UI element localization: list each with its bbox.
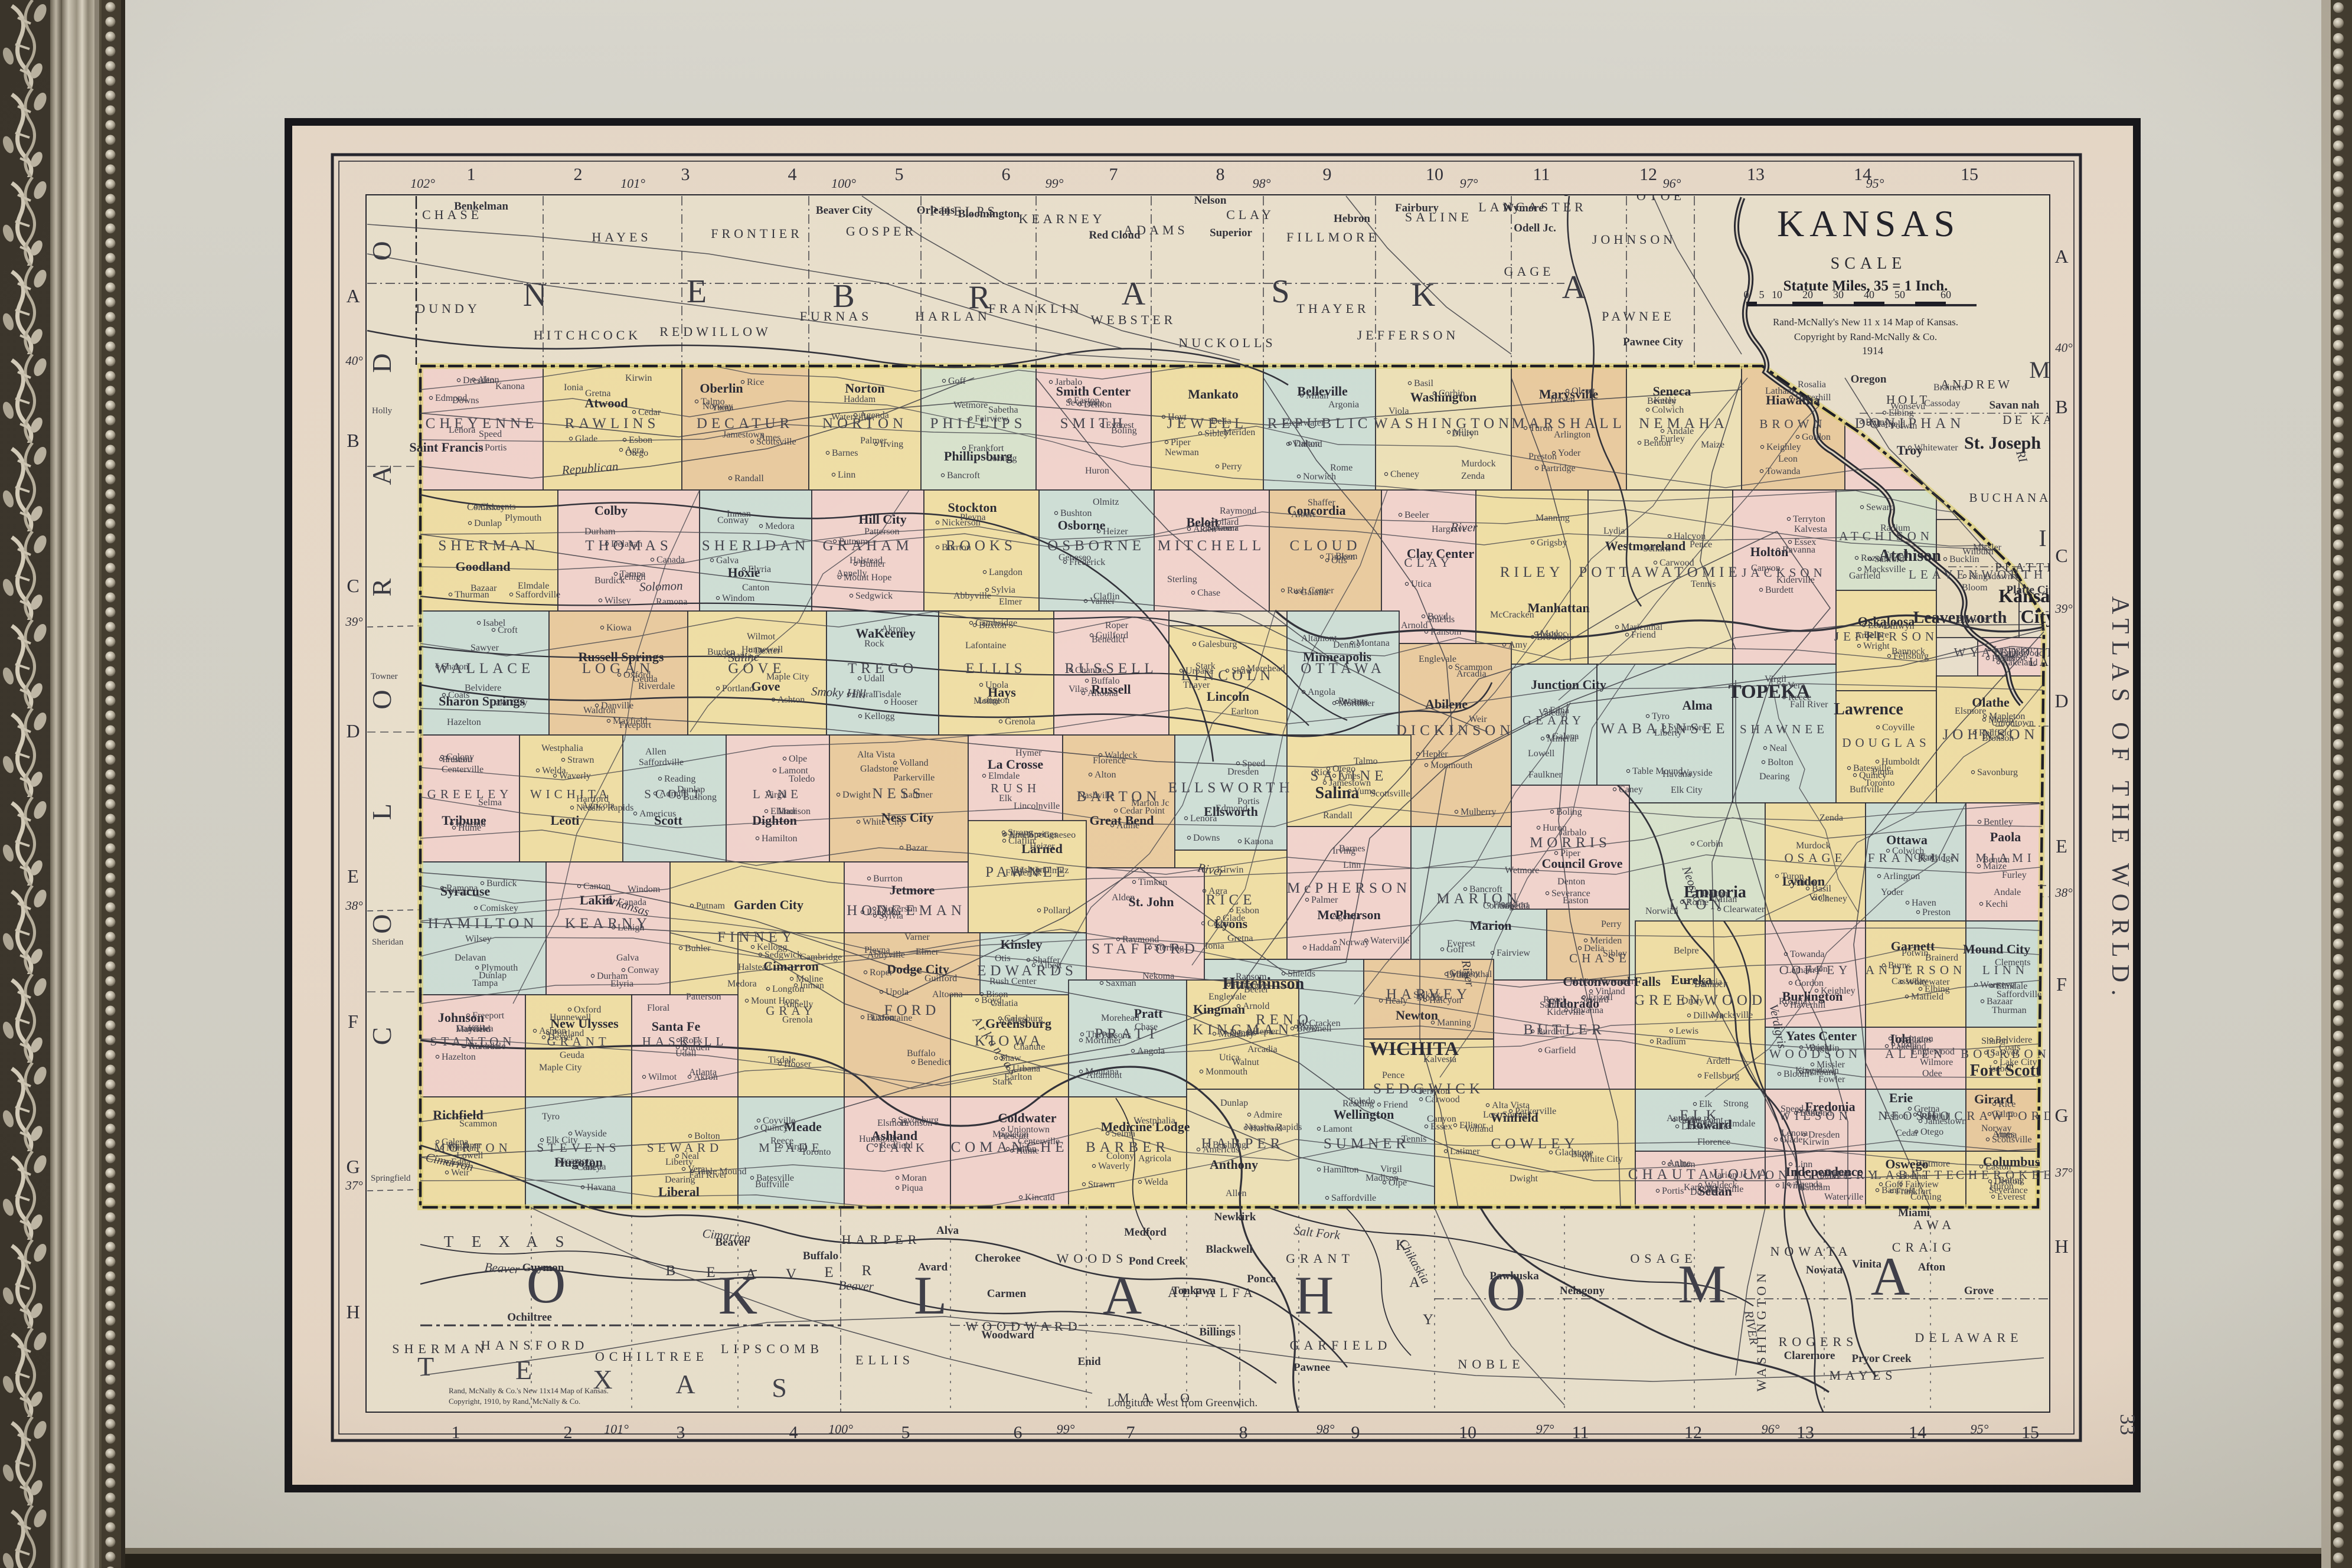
svg-text:ATLAS OF THE WORLD.: ATLAS OF THE WORLD. [2106,596,2134,1002]
svg-text:33: 33 [2116,1414,2139,1435]
